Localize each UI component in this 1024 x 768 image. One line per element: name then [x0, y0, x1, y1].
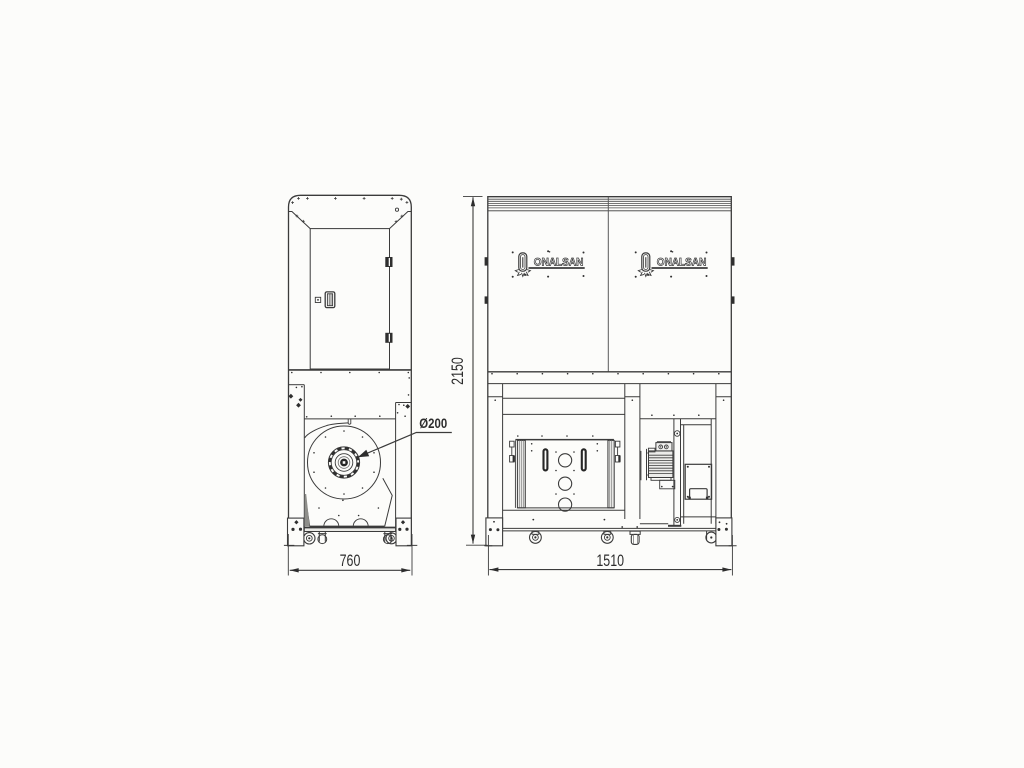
- svg-text:1510: 1510: [596, 552, 624, 570]
- svg-text:2150: 2150: [449, 357, 467, 385]
- svg-text:ONALSAN: ONALSAN: [534, 256, 584, 269]
- svg-text:Ø200: Ø200: [419, 416, 447, 431]
- svg-text:760: 760: [340, 552, 361, 570]
- svg-text:ONALSAN: ONALSAN: [657, 256, 707, 269]
